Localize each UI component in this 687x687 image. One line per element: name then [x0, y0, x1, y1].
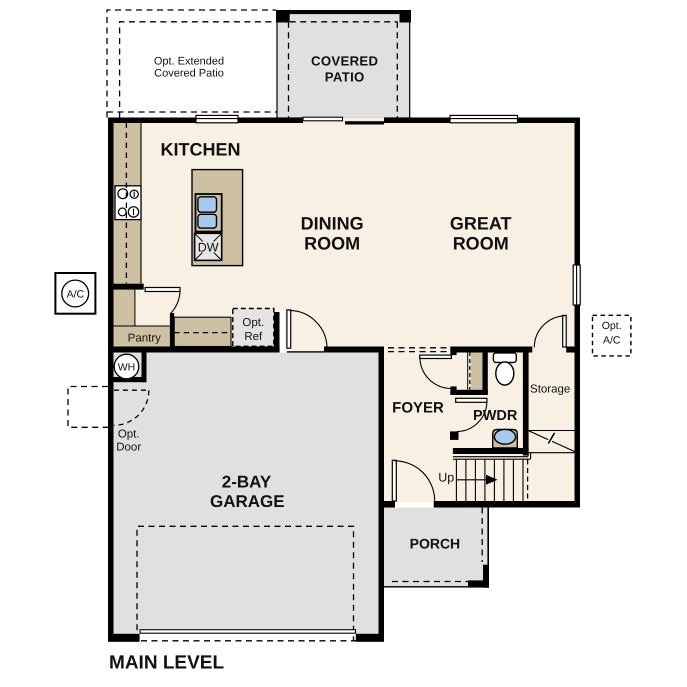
svg-text:DW: DW	[198, 241, 219, 255]
svg-text:A/C: A/C	[603, 335, 621, 347]
svg-text:PORCH: PORCH	[410, 536, 461, 552]
svg-text:GREAT: GREAT	[450, 213, 512, 233]
svg-text:PWDR: PWDR	[473, 408, 518, 424]
svg-text:Opt.: Opt.	[242, 317, 264, 329]
svg-text:GARAGE: GARAGE	[210, 492, 285, 511]
svg-text:KITCHEN: KITCHEN	[161, 140, 241, 160]
svg-text:DINING: DINING	[301, 213, 364, 233]
svg-text:MAIN LEVEL: MAIN LEVEL	[109, 653, 224, 674]
svg-text:Door: Door	[116, 442, 141, 454]
svg-text:2-BAY: 2-BAY	[222, 472, 272, 491]
svg-text:Storage: Storage	[530, 384, 570, 396]
svg-text:Ref: Ref	[244, 331, 263, 343]
svg-text:Opt.: Opt.	[602, 320, 622, 332]
svg-text:COVERED: COVERED	[311, 54, 378, 69]
svg-text:Up: Up	[438, 471, 454, 485]
svg-text:A/C: A/C	[67, 289, 85, 301]
svg-text:Opt.: Opt.	[118, 429, 140, 441]
svg-text:WH: WH	[118, 362, 136, 374]
svg-text:Pantry: Pantry	[128, 333, 161, 345]
svg-text:Opt. Extended: Opt. Extended	[154, 55, 224, 67]
svg-text:Covered Patio: Covered Patio	[154, 68, 224, 80]
svg-text:PATIO: PATIO	[325, 70, 365, 85]
svg-text:ROOM: ROOM	[453, 233, 509, 253]
svg-text:ROOM: ROOM	[304, 233, 360, 253]
svg-text:FOYER: FOYER	[392, 400, 444, 417]
